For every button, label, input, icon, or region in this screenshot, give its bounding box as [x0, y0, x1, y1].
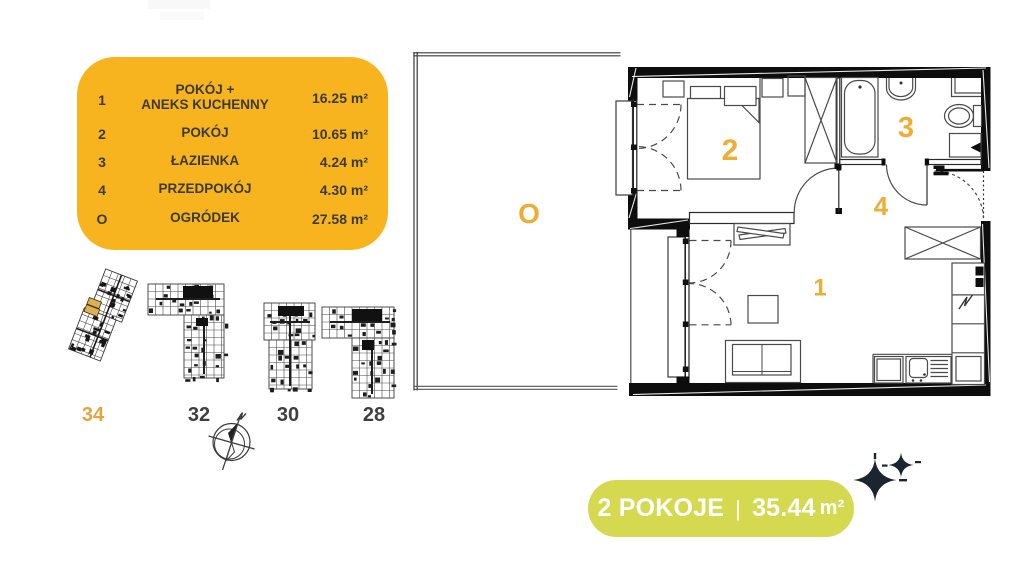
svg-text:2: 2	[722, 134, 739, 167]
svg-text:1: 1	[813, 275, 826, 302]
svg-text:3: 3	[898, 112, 914, 144]
svg-text:O: O	[518, 198, 540, 229]
svg-text:4: 4	[874, 191, 889, 221]
